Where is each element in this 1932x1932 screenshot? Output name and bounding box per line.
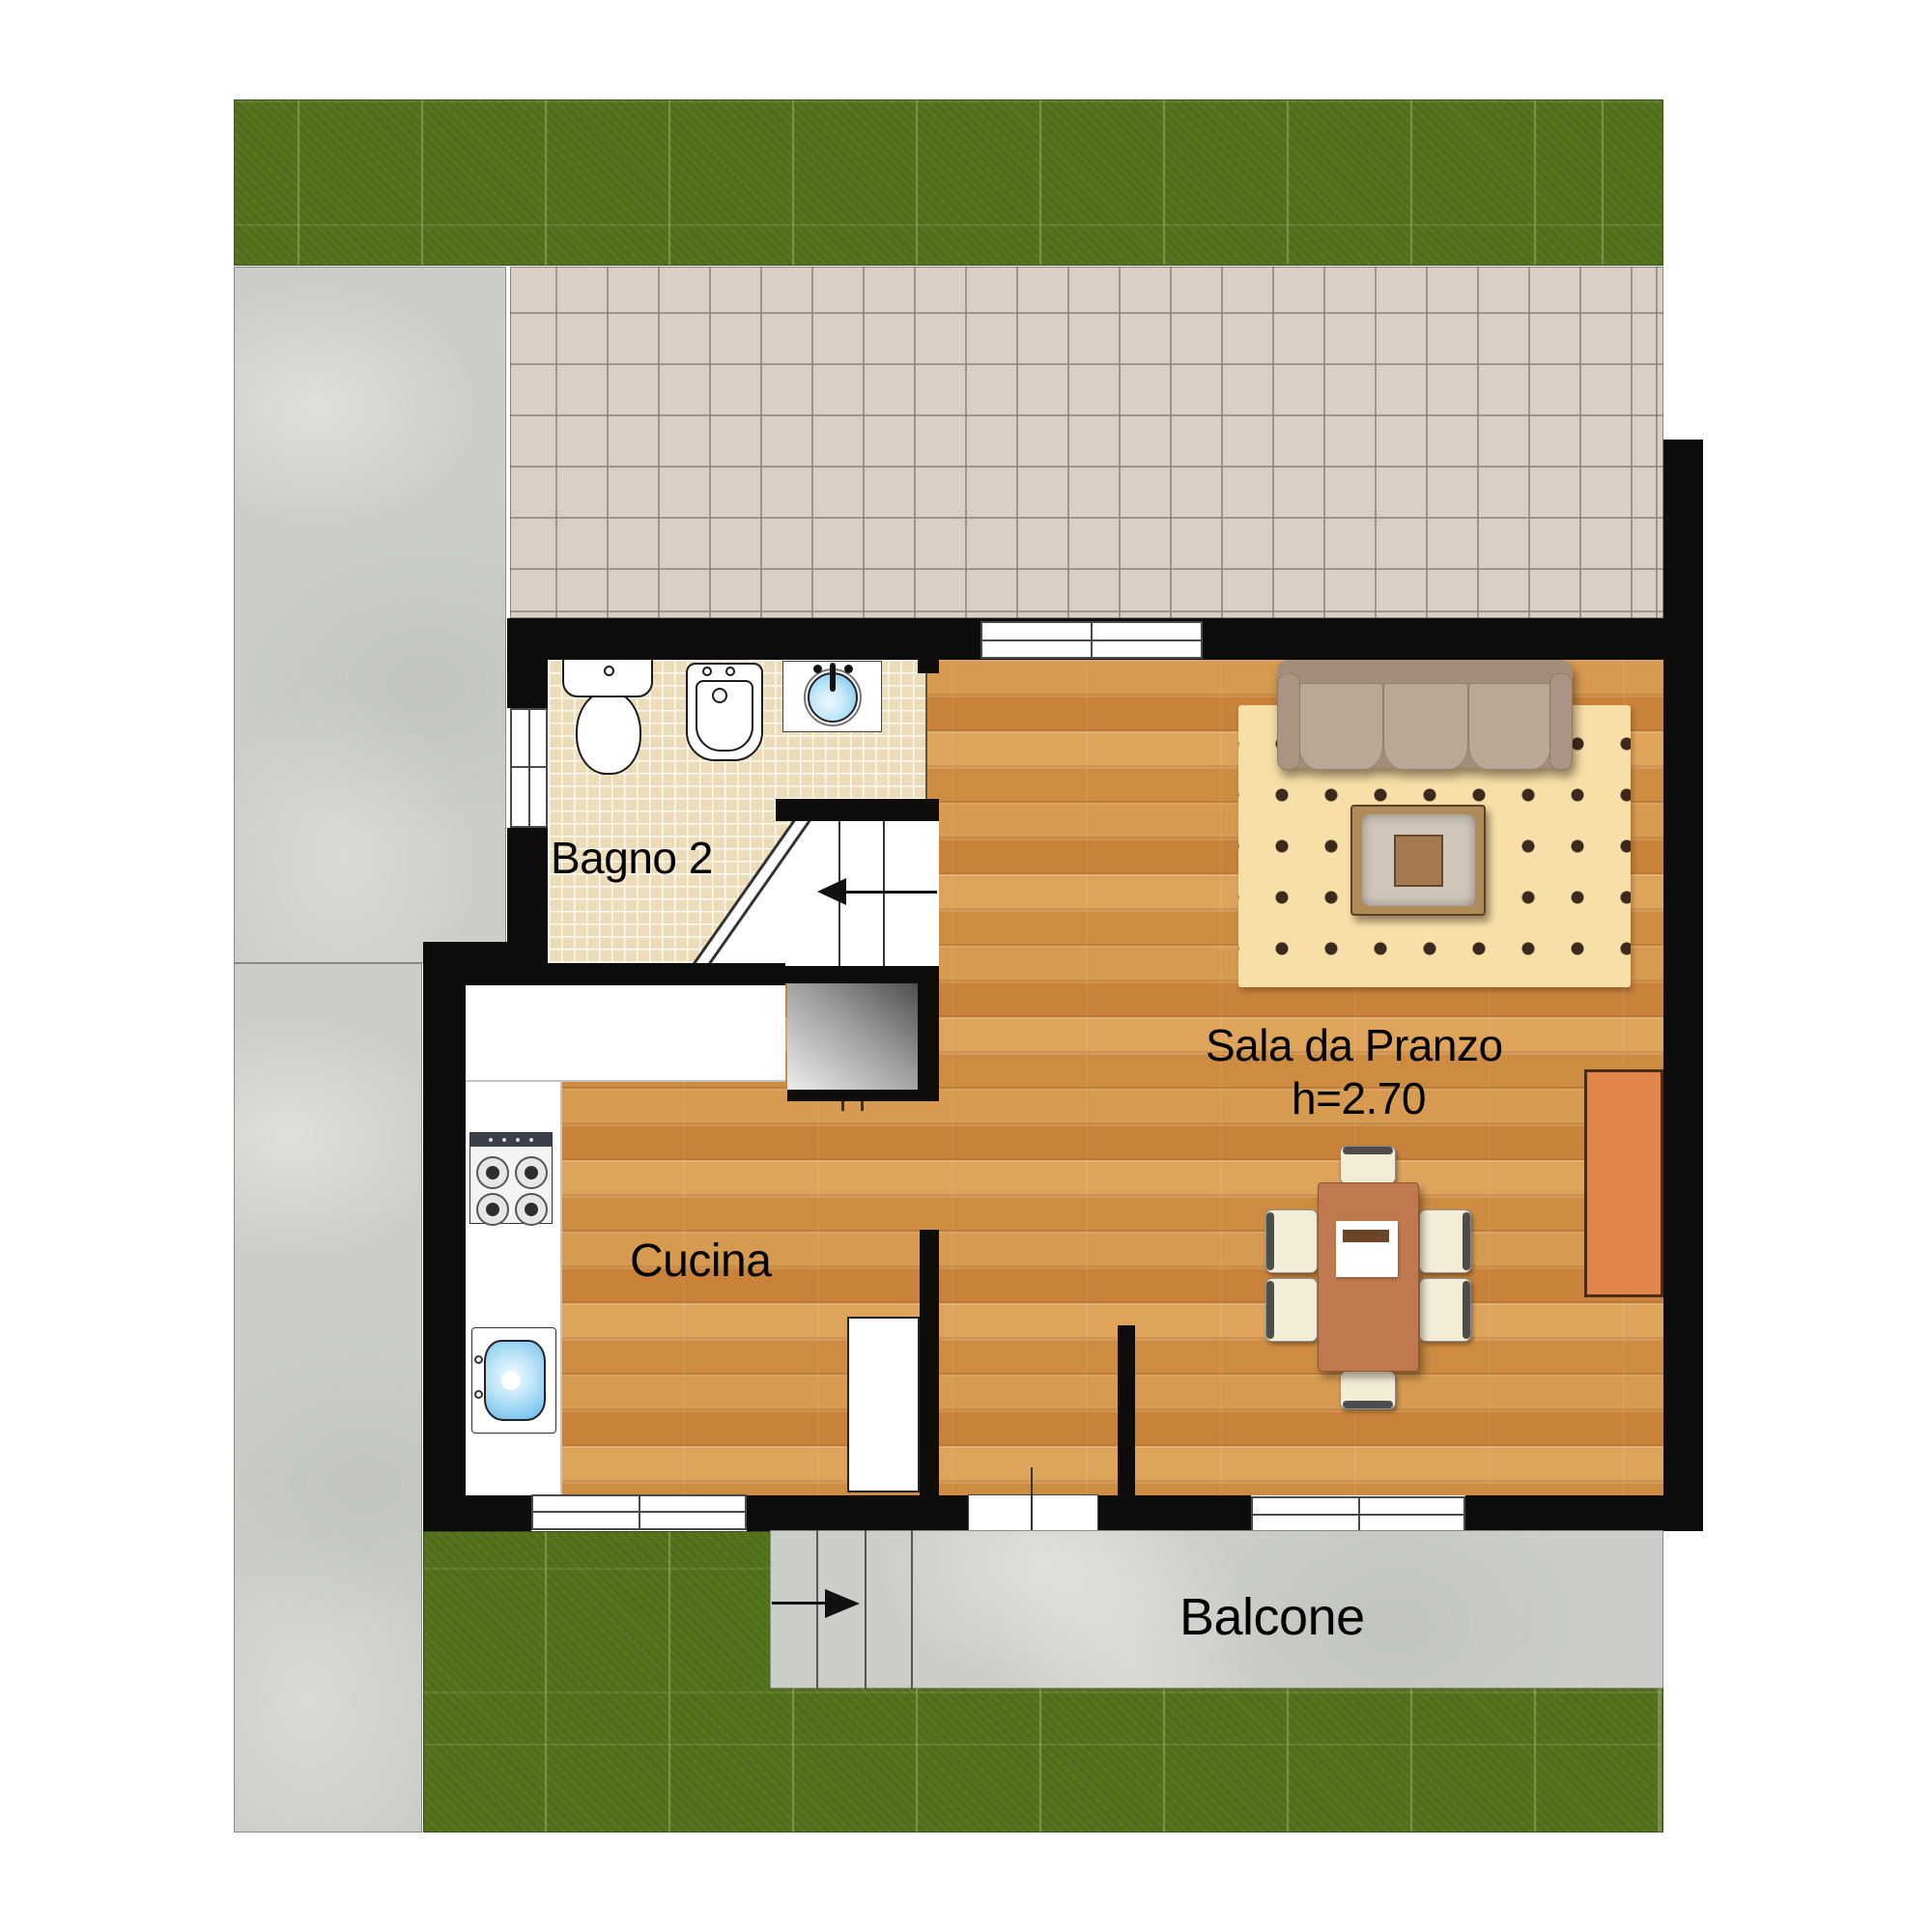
- wall-bathroom-kitchen: [423, 963, 785, 985]
- cabinet-door-tick: [861, 1101, 864, 1111]
- burner-dot: [525, 1203, 538, 1216]
- balcony-door-leaf-line: [1031, 1467, 1033, 1538]
- kitchen-hall-door-leaf: [847, 1317, 920, 1492]
- stair-top-bar: [776, 799, 939, 821]
- sink-drain: [501, 1371, 521, 1390]
- wall-bottom: [1098, 1495, 1251, 1531]
- window-living-top: [980, 621, 1203, 659]
- balcony-door: [968, 1494, 1098, 1531]
- wall-right: [1663, 440, 1703, 1531]
- stove-knob: [489, 1138, 493, 1142]
- sofa-cushion: [1383, 683, 1468, 770]
- cabinet-door-tick: [841, 1101, 844, 1111]
- dining-chair: [1419, 1209, 1471, 1273]
- sofa-cushion: [1468, 683, 1551, 770]
- floor-plan: Bagno 2 Cucina Sala da Pranzo h=2.70 Bal…: [0, 0, 1932, 1932]
- stair-arrow-left-icon: [817, 878, 846, 905]
- sofa: [1277, 660, 1573, 773]
- understair-cabinet: [787, 983, 918, 1090]
- toilet-button: [604, 666, 614, 676]
- coffee-table-tray: [1394, 835, 1443, 887]
- stove-knob: [516, 1138, 520, 1142]
- balcony-stair-tread: [911, 1530, 913, 1689]
- balcony-stair-tread: [816, 1530, 818, 1689]
- table-placemat: [1343, 1230, 1389, 1242]
- kitchen-counter-top: [466, 983, 785, 1082]
- sofa-armrest: [1277, 673, 1300, 770]
- burner-dot: [486, 1166, 499, 1179]
- washbasin-tap-icon: [830, 663, 836, 692]
- wall-left-bathroom-lower: [507, 828, 548, 985]
- dining-chair: [1419, 1278, 1471, 1342]
- balcony-arrow-right-icon: [825, 1589, 860, 1618]
- wall-stub-bathroom-living: [918, 660, 939, 673]
- sideboard: [1584, 1069, 1663, 1297]
- balcony-stair-tread: [865, 1530, 867, 1689]
- wall-left-bathroom-upper: [507, 618, 548, 708]
- wall-bottom: [747, 1495, 968, 1531]
- room-label-cucina: Cucina: [630, 1235, 771, 1288]
- washbasin-tap-dot: [813, 665, 822, 673]
- washbasin-tap-dot: [844, 665, 853, 673]
- stove-control-panel: [470, 1133, 552, 1147]
- side-path-lower: [234, 963, 422, 1833]
- window-kitchen-bottom: [531, 1494, 747, 1530]
- wall-bottom: [423, 1495, 531, 1531]
- wall-left-kitchen: [423, 942, 466, 1531]
- window-dining-bottom: [1251, 1496, 1465, 1532]
- stair-bottom-bar: [785, 966, 939, 983]
- kitchen-sink-icon: [471, 1327, 556, 1434]
- wall-understair-right: [918, 983, 939, 1101]
- sink-tap-dot: [474, 1355, 483, 1364]
- stove-knob: [529, 1138, 533, 1142]
- understair-cabinet-front: [787, 1090, 918, 1101]
- dining-chair: [1265, 1278, 1318, 1342]
- window-bathroom-left: [510, 708, 548, 828]
- sofa-cushion: [1298, 683, 1383, 770]
- side-path-upper: [234, 267, 506, 963]
- wall-bottom: [1465, 1495, 1703, 1531]
- burner-dot: [486, 1203, 499, 1216]
- dining-chair: [1340, 1146, 1396, 1184]
- dining-chair: [1265, 1209, 1318, 1273]
- dining-table: [1318, 1182, 1419, 1372]
- stair-tread-line: [883, 821, 885, 966]
- room-label-balcone: Balcone: [1179, 1587, 1365, 1647]
- balcony-direction-line: [772, 1602, 827, 1605]
- room-label-sala: Sala da Pranzo: [1206, 1019, 1503, 1071]
- sink-tap-dot: [474, 1390, 483, 1399]
- stair-direction-line: [845, 891, 937, 894]
- wall-hall-dining: [1118, 1325, 1135, 1497]
- stove-knob: [502, 1138, 506, 1142]
- bidet-tap-hole: [725, 667, 735, 676]
- terrace-tiled-patio: [510, 267, 1663, 618]
- room-label-bagno: Bagno 2: [551, 832, 713, 884]
- wall-kitchen-hall: [920, 1230, 939, 1497]
- bidet-drain: [712, 688, 727, 703]
- stove-icon: [469, 1132, 553, 1224]
- lawn-top: [234, 99, 1663, 266]
- bidet-tap-hole: [702, 667, 712, 676]
- room-label-sala-height: h=2.70: [1292, 1072, 1426, 1124]
- burner-dot: [525, 1166, 538, 1179]
- toilet-bowl-icon: [576, 690, 641, 775]
- sofa-armrest: [1549, 673, 1573, 770]
- dining-chair: [1340, 1371, 1396, 1409]
